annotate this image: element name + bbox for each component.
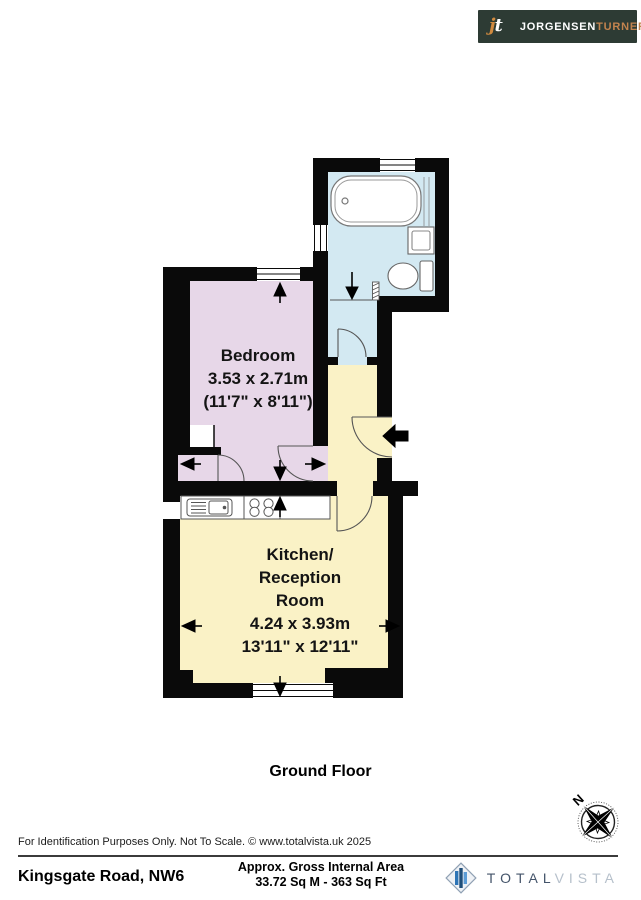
bath-icon [331, 176, 429, 226]
property-address: Kingsgate Road, NW6 [18, 868, 184, 886]
kitchen-label-line2: Reception [259, 568, 341, 587]
gross-internal-area: Approx. Gross Internal Area 33.72 Sq M -… [221, 860, 421, 890]
kitchen-counter [181, 496, 330, 519]
kitchen-dims-metric: 4.24 x 3.93m [250, 614, 350, 633]
kitchen-label-line1: Kitchen/ [266, 545, 333, 564]
hob-icon [244, 496, 280, 519]
disclaimer-text: For Identification Purposes Only. Not To… [18, 836, 371, 848]
provider-logo: TOTALVISTA [445, 862, 619, 894]
bedroom-dims-imperial: (11'7" x 8'11") [203, 392, 312, 411]
kitchen-window [253, 683, 333, 698]
bedroom-window [257, 267, 300, 281]
bedroom-dims-metric: 3.53 x 2.71m [208, 369, 308, 388]
kitchen-sink-icon [187, 499, 232, 516]
area-value: 33.72 Sq M - 363 Sq Ft [221, 875, 421, 890]
provider-name-part1: TOTAL [487, 870, 555, 886]
provider-name-part2: VISTA [555, 870, 619, 886]
bedroom-label: Bedroom [221, 346, 296, 365]
provider-name: TOTALVISTA [487, 870, 619, 886]
area-label: Approx. Gross Internal Area [221, 860, 421, 875]
footer-divider [18, 855, 618, 857]
kitchen-dims-imperial: 13'11" x 12'11" [242, 637, 359, 656]
bathroom-left-window [313, 225, 328, 251]
provider-diamond-icon [445, 862, 477, 894]
kitchen-label-line3: Room [276, 591, 324, 610]
compass-icon: N [557, 780, 629, 853]
basin-icon [408, 227, 434, 254]
floor-caption: Ground Floor [0, 763, 641, 781]
bathroom-top-window [380, 158, 415, 172]
toilet-icon [388, 261, 433, 291]
floorplan-page: jt JORGENSENTURNER [0, 0, 641, 900]
